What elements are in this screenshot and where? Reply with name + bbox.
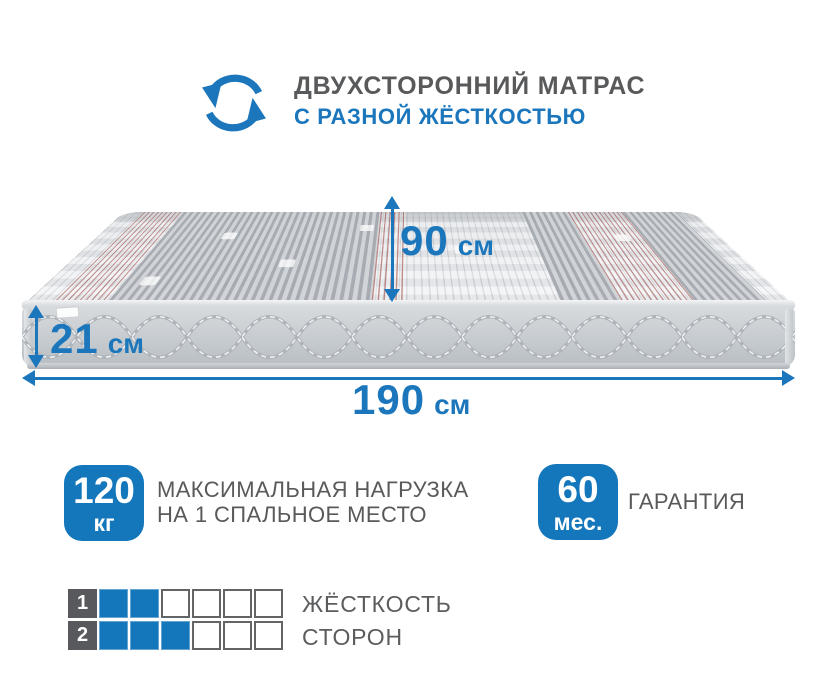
firmness-scale-labels: ЖЁСТКОСТЬ СТОРОН	[302, 592, 452, 649]
firmness-cells-row-2	[99, 621, 283, 650]
depth-unit: см	[458, 232, 494, 260]
depth-arrow	[384, 196, 400, 302]
firmness-cell	[130, 621, 159, 650]
fabric-logo-patch	[278, 259, 296, 267]
header-titles: ДВУХСТОРОННИЙ МАТРАС С РАЗНОЙ ЖЁСТКОСТЬЮ	[294, 72, 645, 130]
max-load-badge: 120 кг	[64, 465, 144, 541]
firmness-label: ЖЁСТКОСТЬ	[302, 592, 452, 616]
height-value: 21	[50, 318, 99, 360]
warranty-unit: мес.	[554, 511, 603, 534]
firmness-row-index: 1	[68, 589, 97, 618]
firmness-cell	[130, 589, 159, 618]
firmness-cell	[223, 621, 252, 650]
max-load-unit: кг	[93, 512, 114, 535]
firmness-cell	[223, 589, 252, 618]
page-title: ДВУХСТОРОННИЙ МАТРАС	[294, 72, 645, 100]
length-unit: см	[434, 391, 470, 419]
firmness-cell	[254, 589, 283, 618]
firmness-cell	[99, 621, 128, 650]
sides-label: СТОРОН	[302, 625, 452, 649]
height-dimension: 21 см	[50, 318, 144, 360]
firmness-cell	[99, 589, 128, 618]
rotate-arrows-icon	[201, 72, 267, 134]
warranty-label: ГАРАНТИЯ	[628, 489, 745, 514]
max-load-label-line1: МАКСИМАЛЬНАЯ НАГРУЗКА	[157, 477, 469, 502]
page-subtitle: С РАЗНОЙ ЖЁСТКОСТЬЮ	[294, 104, 645, 130]
length-value: 190	[352, 379, 425, 421]
firmness-row-2: 2	[68, 621, 283, 650]
height-unit: см	[108, 330, 144, 358]
depth-dimension: 90 см	[400, 220, 494, 262]
length-dimension: 190 см	[352, 379, 470, 421]
warranty-value: 60	[557, 471, 598, 508]
height-arrow	[28, 305, 44, 368]
fabric-logo-patch	[360, 225, 374, 231]
warranty-badge: 60 мес.	[538, 464, 618, 540]
firmness-cell	[192, 589, 221, 618]
max-load-value: 120	[73, 472, 135, 509]
mattress-infographic: ДВУХСТОРОННИЙ МАТРАС С РАЗНОЙ ЖЁСТКОСТЬЮ	[0, 0, 816, 700]
max-load-label: МАКСИМАЛЬНАЯ НАГРУЗКА НА 1 СПАЛЬНОЕ МЕСТ…	[157, 477, 469, 527]
firmness-cell	[161, 589, 190, 618]
firmness-row-1: 1	[68, 589, 283, 618]
depth-value: 90	[400, 220, 449, 262]
firmness-cell	[192, 621, 221, 650]
firmness-scale: 1 2	[68, 589, 283, 653]
max-load-label-line2: НА 1 СПАЛЬНОЕ МЕСТО	[157, 502, 469, 527]
firmness-row-index: 2	[68, 621, 97, 650]
firmness-cells-row-1	[99, 589, 283, 618]
mattress-bottom-piping	[27, 363, 790, 369]
firmness-cell	[254, 621, 283, 650]
firmness-cell	[161, 621, 190, 650]
